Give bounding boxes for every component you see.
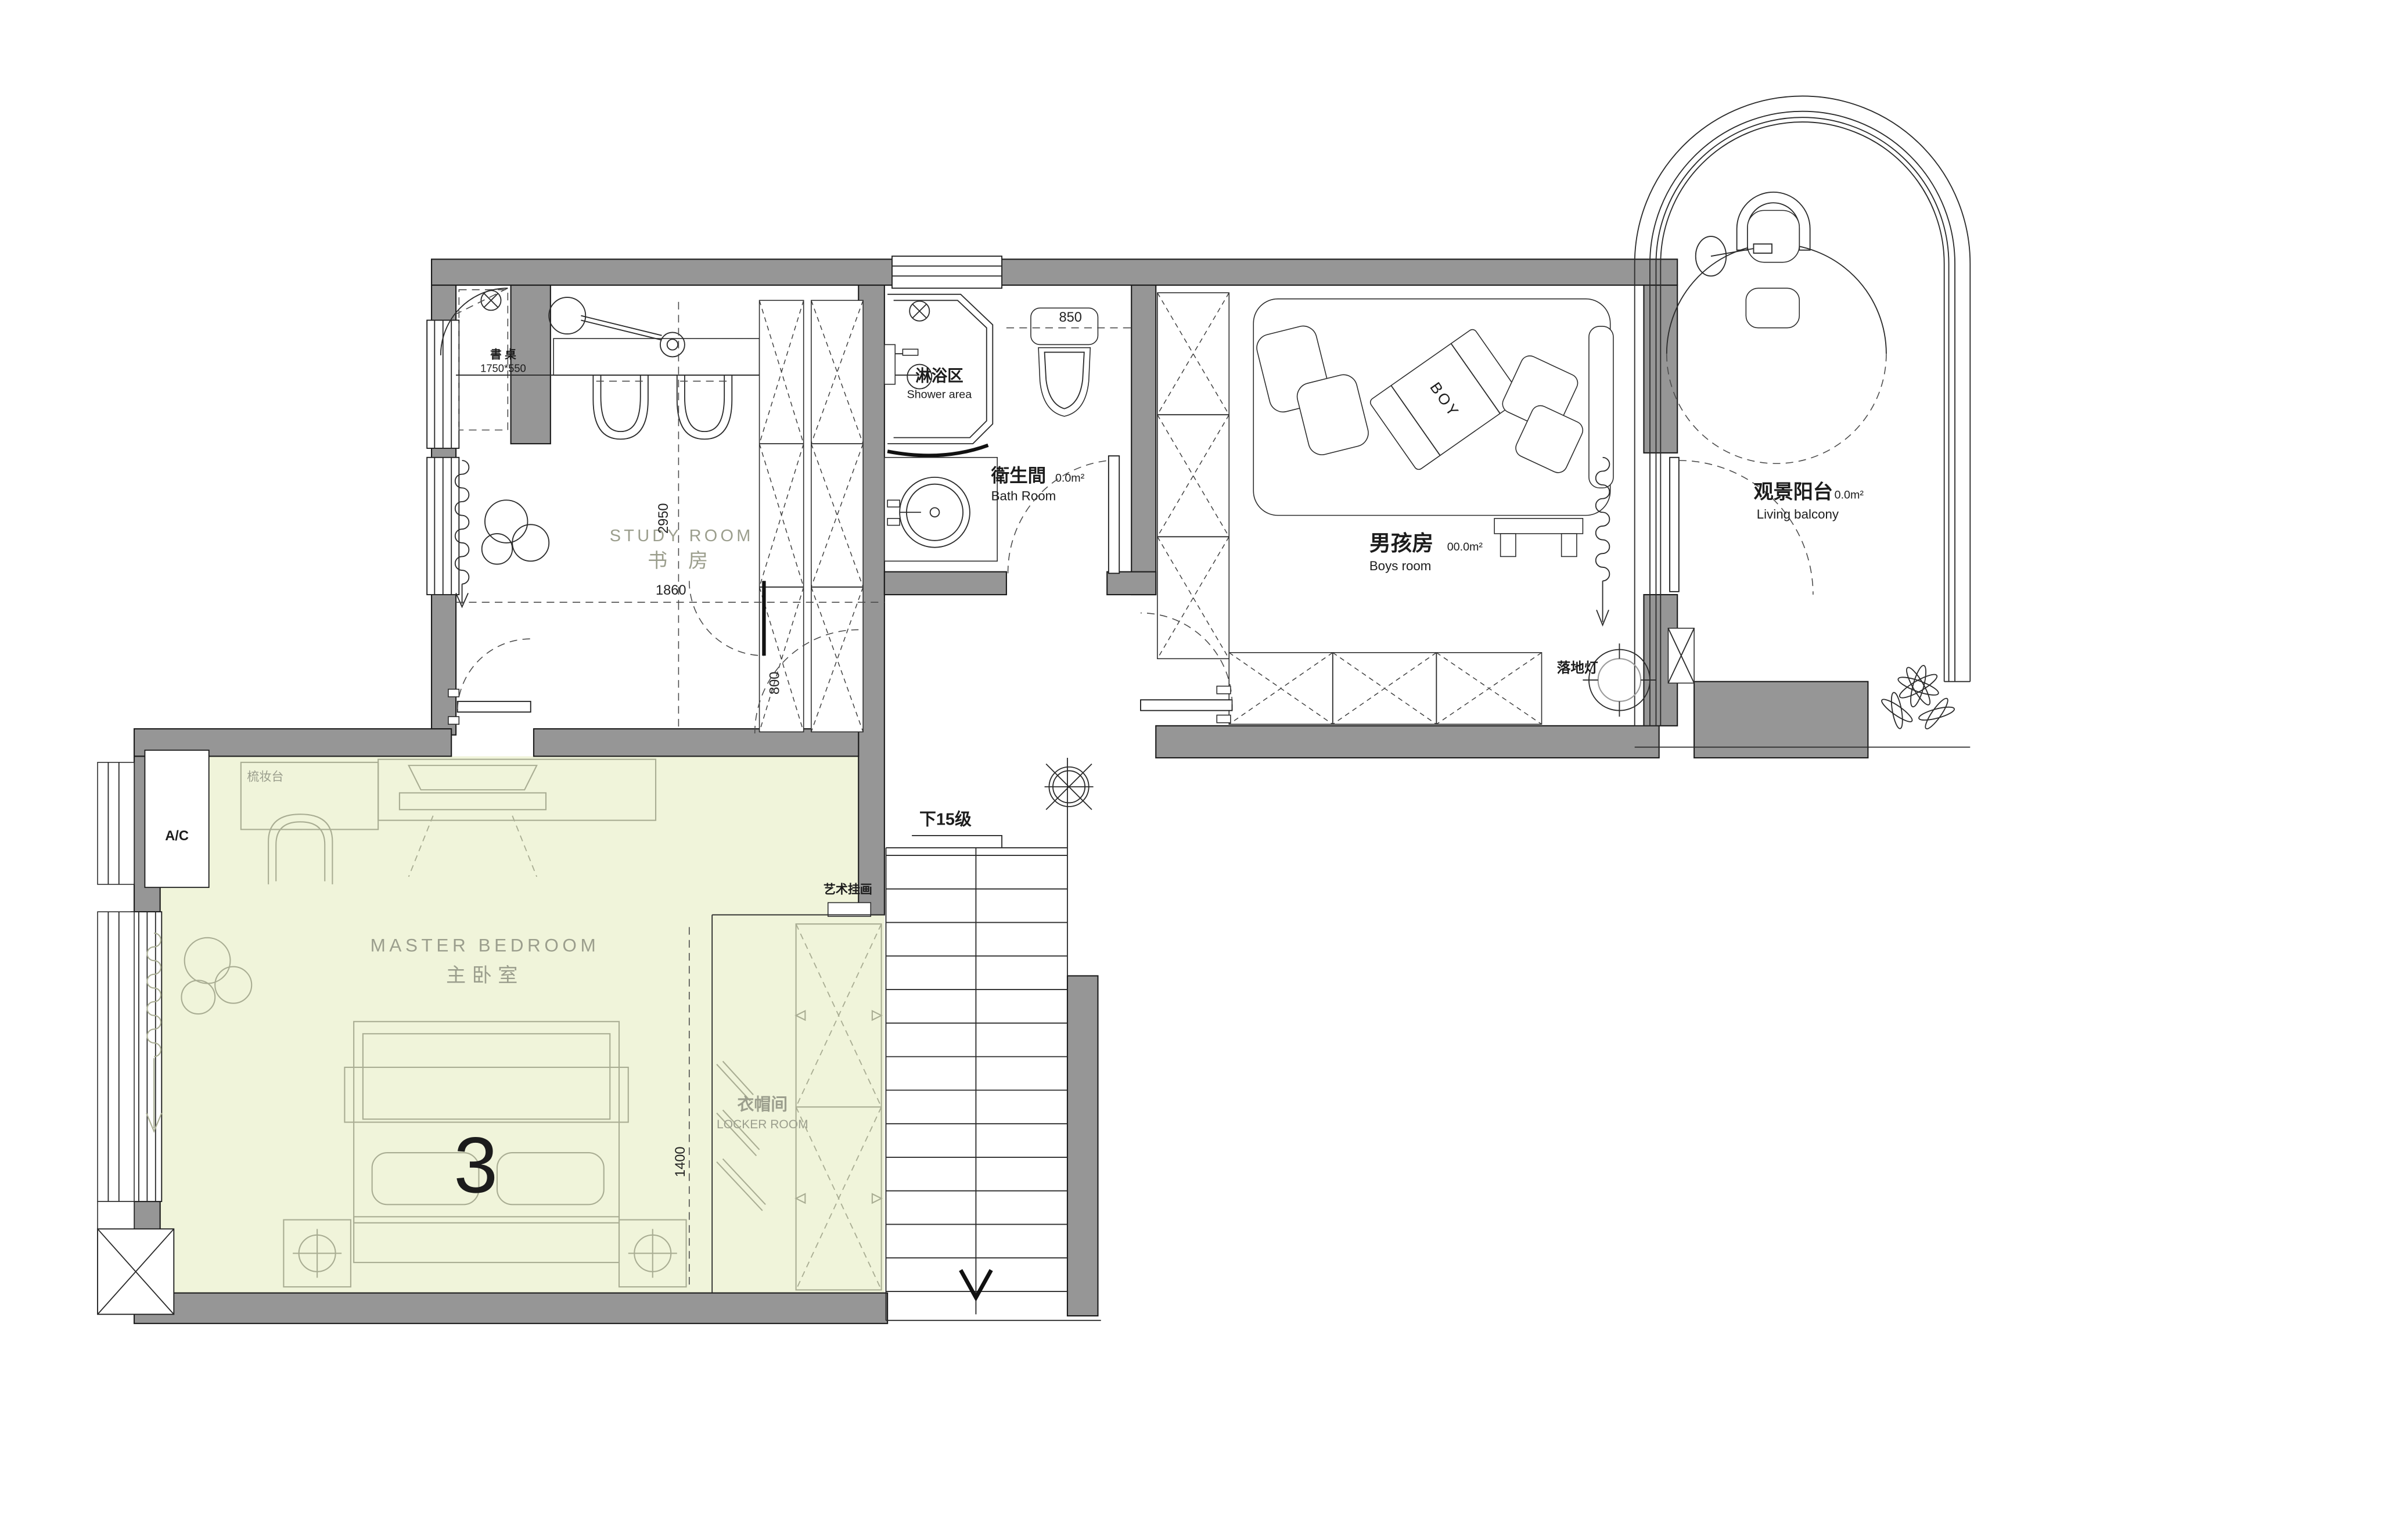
bath-area: 0.0m²: [1055, 472, 1085, 485]
shower-name-cn: 淋浴区: [915, 366, 963, 384]
wall-bath-right: [1131, 285, 1156, 595]
window-master-left: [131, 912, 162, 1201]
boys-room: BOY 落地灯 男孩房 00.0m² Boys room: [1141, 293, 1813, 724]
wall-master-bottom: [134, 1293, 887, 1324]
locker-name-en: LOCKER ROOM: [717, 1118, 808, 1131]
balcony-name-cn: 观景阳台: [1753, 481, 1833, 503]
study-name-cn: 书 房: [648, 550, 715, 572]
compass-icon: [1045, 764, 1094, 809]
locker-name-cn: 衣帽间: [737, 1095, 788, 1114]
boys-name-cn: 男孩房: [1369, 531, 1433, 555]
dim-850: 850: [1059, 310, 1081, 325]
wall-stairs-right: [1067, 976, 1098, 1316]
desk-size-label: 1750*550: [480, 362, 526, 375]
wall-top: [432, 259, 1677, 285]
ac-niche: A/C: [145, 750, 208, 887]
boys-name-en: Boys room: [1369, 559, 1432, 573]
master-name-en: MASTER BEDROOM: [371, 934, 600, 955]
master-name-cn: 主卧室: [446, 965, 524, 987]
window-top-shower: [892, 256, 1002, 288]
wall-boys-bottom: [1156, 726, 1659, 758]
desk-chair: [677, 375, 732, 439]
wall-bath-bottom-west: [885, 572, 1006, 595]
balcony-name-en: Living balcony: [1757, 507, 1839, 521]
dim-800: 800: [768, 672, 783, 695]
parasol-icon: [1667, 244, 1886, 463]
window-left-lower: [427, 458, 459, 595]
dim-2950: 2950: [656, 503, 671, 534]
study-room: STUDY ROOM 书 房 書 桌 1750*550 2950 1860: [455, 297, 885, 732]
boys-area: 00.0m²: [1447, 541, 1483, 553]
plant-icon: [482, 500, 549, 564]
wall-balcony-bottom: [1694, 682, 1868, 758]
balcony: 观景阳台 0.0m² Living balcony: [1667, 192, 1955, 731]
desk-chair: [593, 375, 648, 439]
desk-label: 書 桌: [490, 348, 516, 361]
floor-lamp-label: 落地灯: [1557, 660, 1598, 676]
study-name-en: STUDY ROOM: [610, 527, 754, 545]
bath-room: 淋浴区 Shower area 850 衛生間 0.0m² Bath Room: [885, 294, 1135, 573]
bath-name-en: Bath Room: [991, 488, 1056, 503]
bay-window-outline: [98, 762, 134, 1229]
dresser-label: 梳妆台: [247, 770, 283, 783]
master-number: 3: [454, 1120, 498, 1209]
boys-wardrobe-bottom: [1229, 653, 1541, 724]
bed-bench: [1494, 519, 1583, 557]
dim-1860: 1860: [656, 583, 686, 598]
dim-1400: 1400: [673, 1147, 688, 1178]
ceiling-light-icon: [909, 301, 929, 321]
wall-bath-bottom-east: [1107, 572, 1156, 595]
boys-bed: BOY: [1253, 299, 1613, 516]
wall-master-top-east: [534, 729, 858, 756]
stairs-note: 下15级: [912, 811, 1002, 848]
study-wardrobe: [760, 300, 864, 732]
boys-wardrobe-left: [1157, 293, 1229, 659]
floor-plan: A/C 下15级: [0, 0, 2391, 1540]
shower-name-en: Shower area: [907, 388, 972, 401]
wall-post: [1668, 628, 1694, 683]
art-label: 艺术挂画: [824, 883, 872, 897]
stairs-note-label: 下15级: [919, 811, 972, 829]
ac-label: A/C: [165, 829, 189, 844]
dimension-850: 850: [1006, 310, 1135, 328]
vanity-sink: [885, 458, 997, 562]
corner-column-box: [98, 1229, 174, 1314]
bath-name-cn: 衛生間: [991, 465, 1047, 486]
lounge-chair: [1696, 192, 1810, 328]
balcony-area: 0.0m²: [1835, 489, 1864, 502]
